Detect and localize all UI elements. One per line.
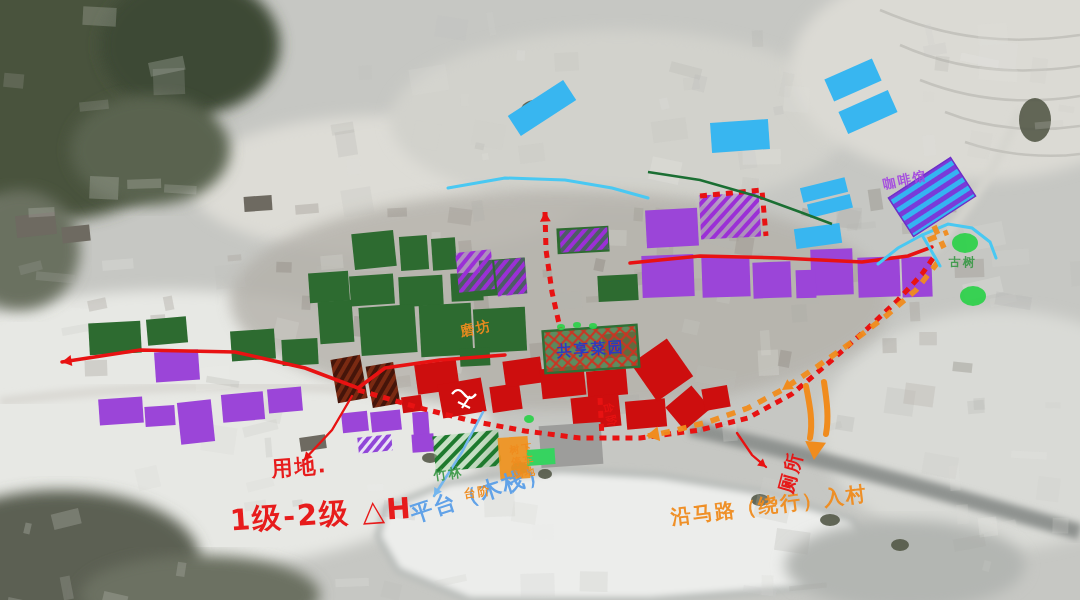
green-building (431, 237, 457, 271)
annotation-text: 古树 (948, 255, 977, 269)
purple-building (144, 405, 175, 427)
green-building (351, 230, 397, 270)
tree-marker (573, 322, 581, 328)
purple-building (341, 411, 369, 434)
purplehatch-building (559, 227, 608, 252)
green-building (318, 300, 355, 344)
purple-building (370, 409, 402, 432)
blue-building (710, 119, 770, 153)
red-building (625, 398, 667, 429)
purple-building (98, 396, 144, 425)
purple-building (221, 391, 265, 423)
green-building (358, 304, 417, 356)
annotation-text: 树下停车场地 (508, 441, 538, 479)
green-building (349, 274, 395, 307)
purple-building (177, 399, 215, 444)
green-building (308, 271, 350, 304)
green-building (597, 274, 638, 302)
purple-building (810, 248, 854, 295)
purple-building (796, 270, 817, 299)
tree-marker (524, 415, 534, 423)
tree-marker (960, 286, 986, 306)
red-building (502, 356, 543, 387)
annotation-text: 用地. (270, 453, 329, 481)
green-building (146, 316, 188, 345)
aerial-planning-map: 用地.1级-2级 △H平台（木栈）沿马路（绕行）入村厕所咖啡馆古树共享菜园磨坊竹… (0, 0, 1080, 600)
big-orange-arrow-stroke (824, 382, 827, 434)
map-canvas: 用地.1级-2级 △H平台（木栈）沿马路（绕行）入村厕所咖啡馆古树共享菜园磨坊竹… (0, 0, 1080, 600)
green-building (398, 275, 444, 307)
purplehatch-building (494, 258, 528, 297)
purple-building (411, 433, 434, 452)
tree-marker (557, 324, 565, 330)
red-building (701, 385, 730, 411)
purple-building (701, 256, 750, 298)
green-building (399, 235, 429, 271)
purple-building (645, 208, 699, 249)
red-building (489, 383, 522, 413)
purplehatch-building (455, 249, 495, 293)
tree-marker (589, 323, 597, 329)
red-building (586, 368, 628, 397)
green-building (281, 338, 318, 366)
tree-marker (952, 233, 978, 253)
purple-building (267, 387, 303, 414)
purple-building (752, 261, 791, 298)
purple-building (154, 350, 200, 383)
purplehatch-building (699, 192, 761, 239)
